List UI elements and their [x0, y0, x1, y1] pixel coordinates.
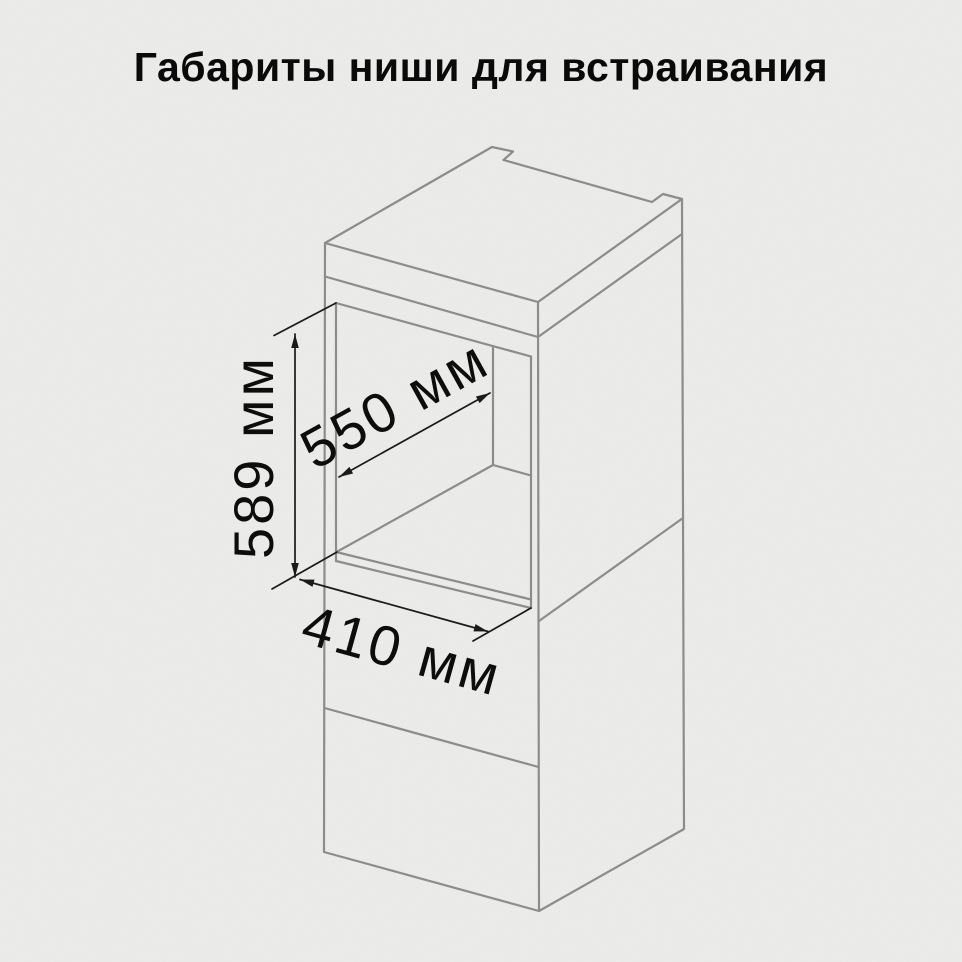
paper-grain-texture [0, 0, 962, 962]
page-title: Габариты ниши для встраивания [0, 44, 962, 90]
cabinet-front-right-edge [538, 302, 539, 911]
height-dimension-label: 589 мм [222, 355, 285, 559]
niche-dimensions-diagram: 589 мм 550 мм 410 мм [0, 0, 962, 962]
niche-dimensions-page: Габариты ниши для встраивания [0, 0, 962, 962]
